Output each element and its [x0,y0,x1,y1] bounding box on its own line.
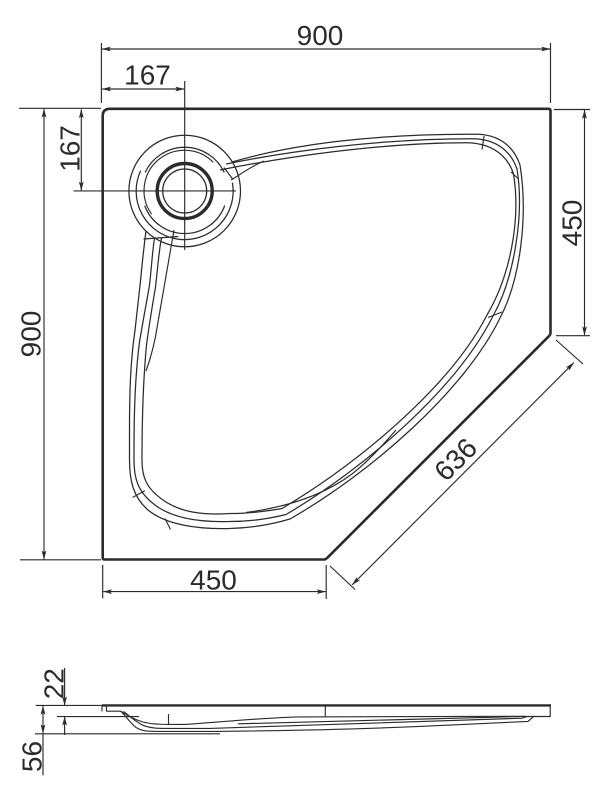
svg-text:450: 450 [557,200,588,247]
svg-text:900: 900 [15,311,46,358]
svg-text:22: 22 [39,668,70,699]
svg-text:56: 56 [16,741,47,772]
svg-text:900: 900 [297,20,344,51]
svg-text:167: 167 [55,125,86,172]
svg-text:450: 450 [190,565,237,596]
svg-text:167: 167 [124,59,171,90]
